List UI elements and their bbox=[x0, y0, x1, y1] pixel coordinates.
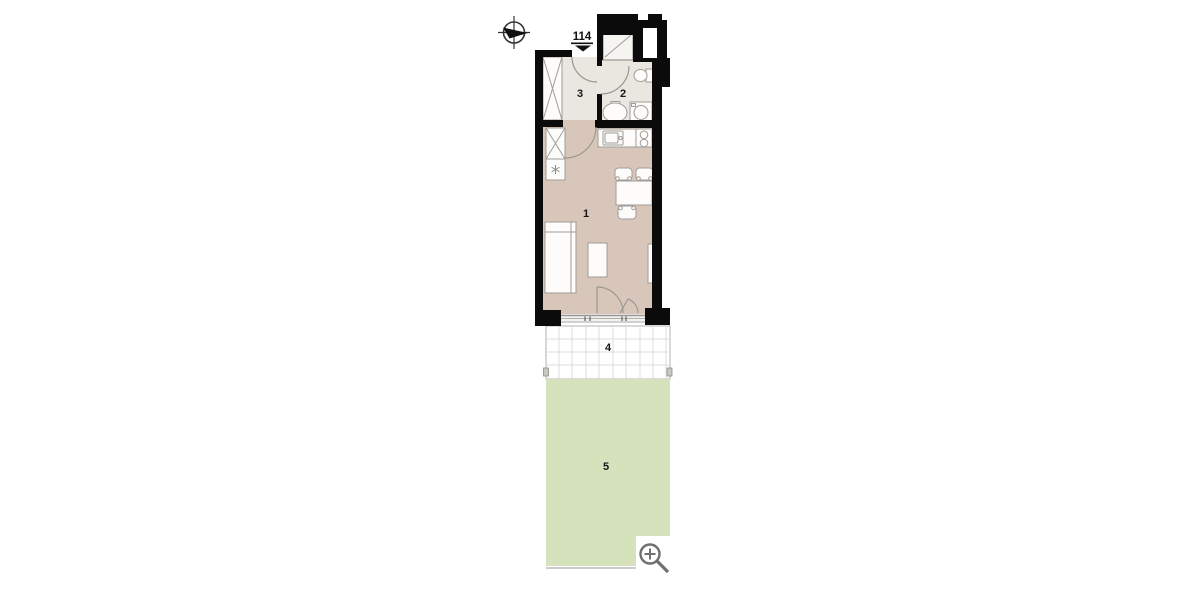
chair bbox=[618, 206, 636, 219]
washing-machine bbox=[630, 102, 652, 123]
dining-table bbox=[616, 181, 652, 205]
kitchen-sink bbox=[603, 131, 623, 145]
shaft-niche bbox=[643, 28, 657, 58]
main-wardrobe bbox=[546, 128, 565, 159]
room-5-label: 5 bbox=[603, 461, 609, 473]
room-2-label: 2 bbox=[620, 88, 626, 100]
floor-plan-page: 1 2 3 4 5 114 bbox=[0, 0, 1200, 600]
patio-window bbox=[561, 314, 645, 323]
side-table bbox=[588, 243, 607, 277]
wall-right bbox=[652, 85, 662, 312]
floor-plan-drawing: 1 2 3 4 5 114 bbox=[0, 0, 1200, 600]
wall-shaft-right bbox=[652, 58, 670, 87]
zoom-button-background[interactable] bbox=[636, 536, 678, 578]
terrace-post-right bbox=[667, 368, 672, 376]
entrance-marker-icon bbox=[575, 46, 591, 52]
wall-stub-top-right bbox=[648, 14, 662, 22]
fridge bbox=[546, 159, 565, 180]
unit-number-underline bbox=[571, 43, 593, 45]
wall-kitchen-top bbox=[595, 120, 652, 128]
zoom-in-button[interactable] bbox=[636, 536, 678, 578]
wall-block-above-shower bbox=[597, 14, 638, 35]
room-1-label: 1 bbox=[583, 208, 589, 220]
chair bbox=[636, 168, 653, 180]
hall-wardrobe bbox=[543, 57, 562, 120]
compass-icon bbox=[498, 16, 530, 49]
wall-strip-left-of-shower bbox=[597, 33, 603, 60]
unit-number-label: 114 bbox=[573, 31, 592, 43]
wall-corner-bottom-right bbox=[645, 308, 670, 325]
toilet bbox=[634, 69, 653, 82]
room-4-label: 4 bbox=[605, 342, 612, 354]
shower bbox=[603, 33, 633, 60]
wall-left bbox=[535, 50, 543, 312]
room-3-label: 3 bbox=[577, 88, 583, 100]
terrace-post-left bbox=[544, 368, 549, 376]
chair bbox=[615, 168, 632, 180]
wall-under-hall bbox=[543, 120, 563, 127]
entrance-marker: 114 bbox=[571, 31, 593, 52]
wall-corner-bottom-left bbox=[535, 310, 561, 326]
bed bbox=[545, 222, 576, 293]
